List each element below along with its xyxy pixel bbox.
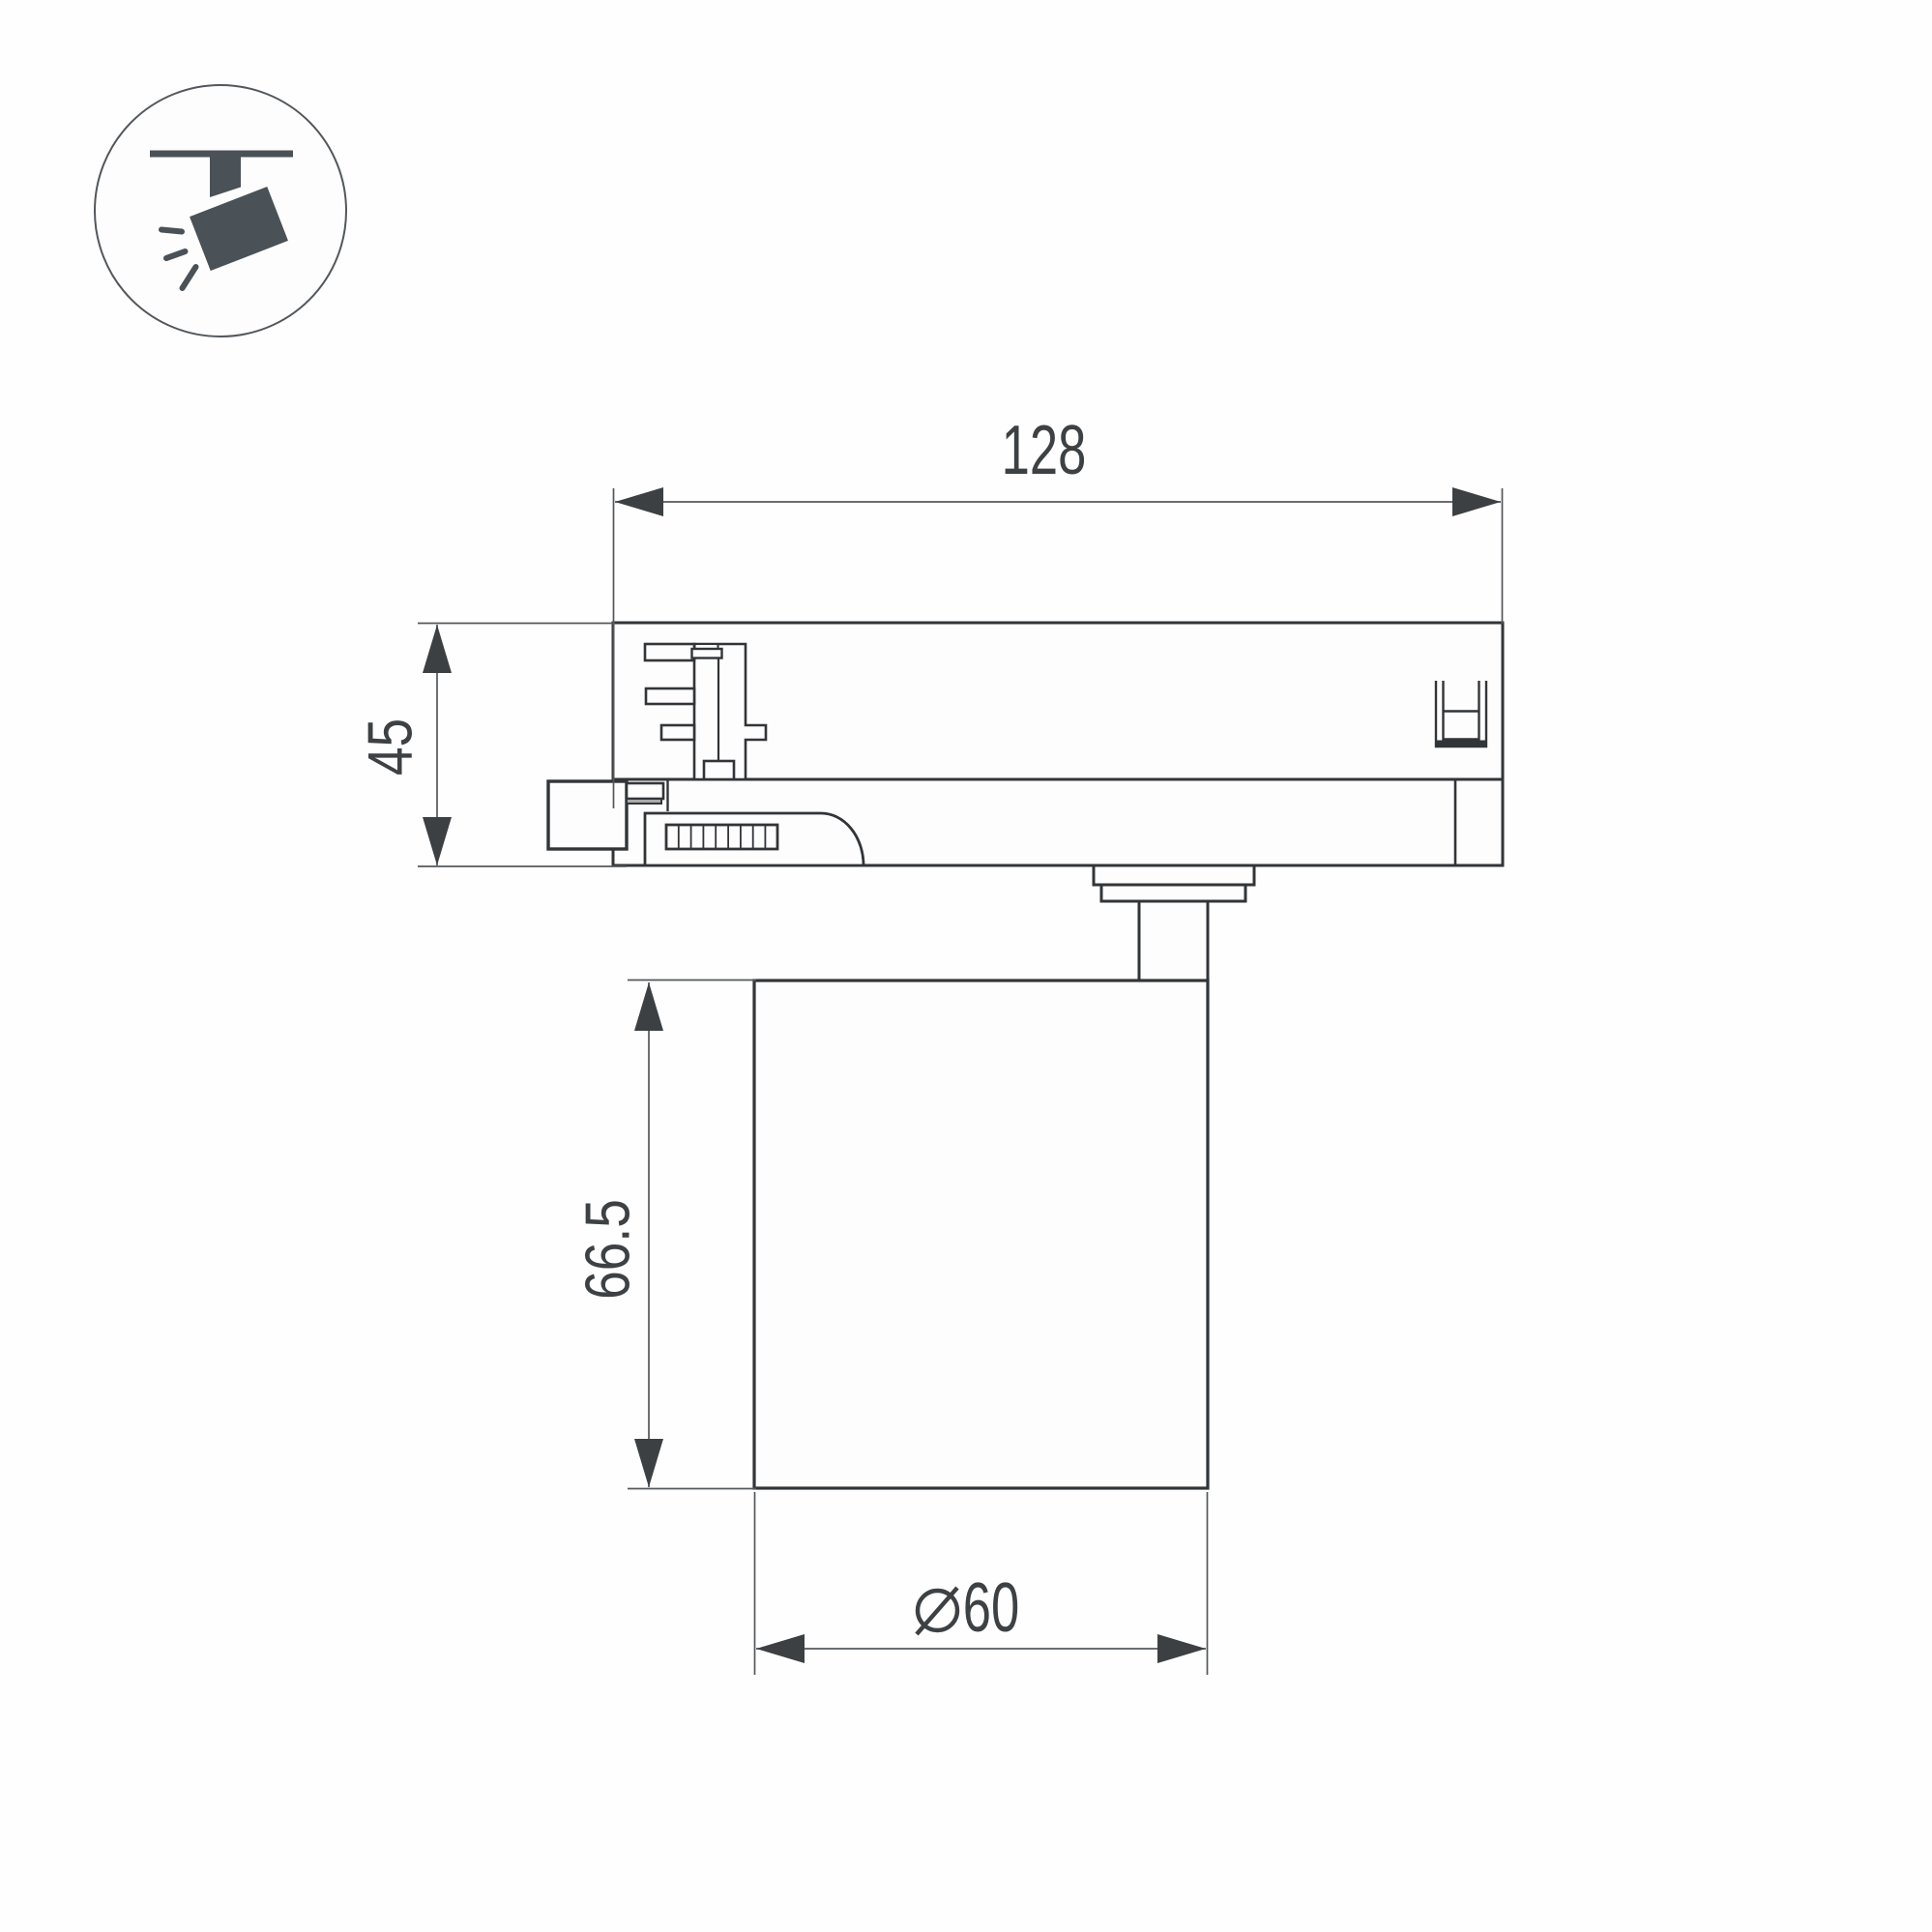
svg-text:45: 45 [354, 718, 424, 776]
svg-text:66.5: 66.5 [571, 1199, 642, 1300]
svg-text:60: 60 [963, 1569, 1019, 1647]
svg-text:128: 128 [1002, 412, 1087, 489]
